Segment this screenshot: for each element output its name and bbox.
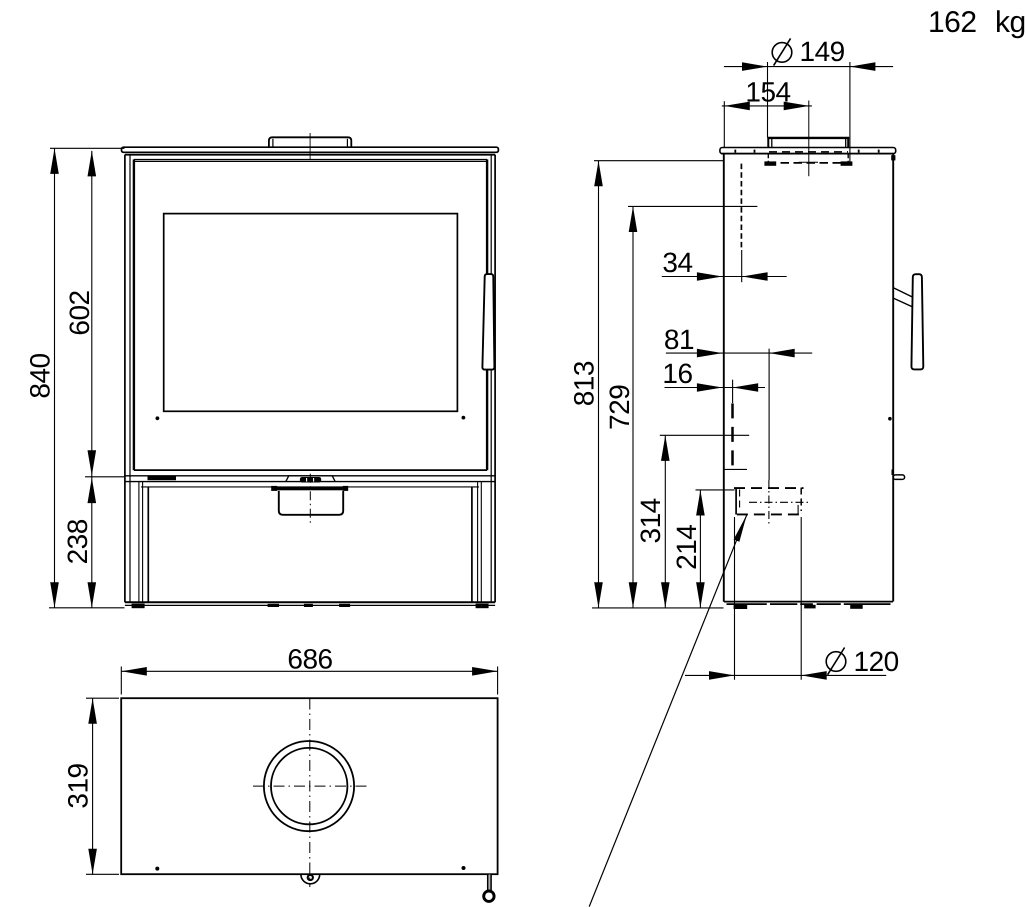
svg-text:238: 238 [62, 519, 93, 564]
svg-text:729: 729 [604, 385, 635, 430]
svg-text:81: 81 [664, 324, 694, 355]
svg-text:319: 319 [63, 763, 94, 808]
svg-text:602: 602 [64, 290, 95, 335]
svg-text:154: 154 [745, 77, 790, 108]
svg-text:149: 149 [800, 36, 845, 67]
svg-text:214: 214 [671, 525, 702, 570]
svg-text:kg: kg [995, 6, 1026, 39]
svg-text:34: 34 [662, 247, 692, 278]
svg-text:813: 813 [569, 361, 600, 406]
svg-text:686: 686 [287, 644, 332, 675]
svg-text:840: 840 [24, 353, 55, 398]
svg-text:162: 162 [928, 6, 977, 39]
svg-text:16: 16 [662, 358, 692, 389]
svg-text:120: 120 [854, 646, 899, 677]
svg-text:314: 314 [635, 498, 666, 543]
